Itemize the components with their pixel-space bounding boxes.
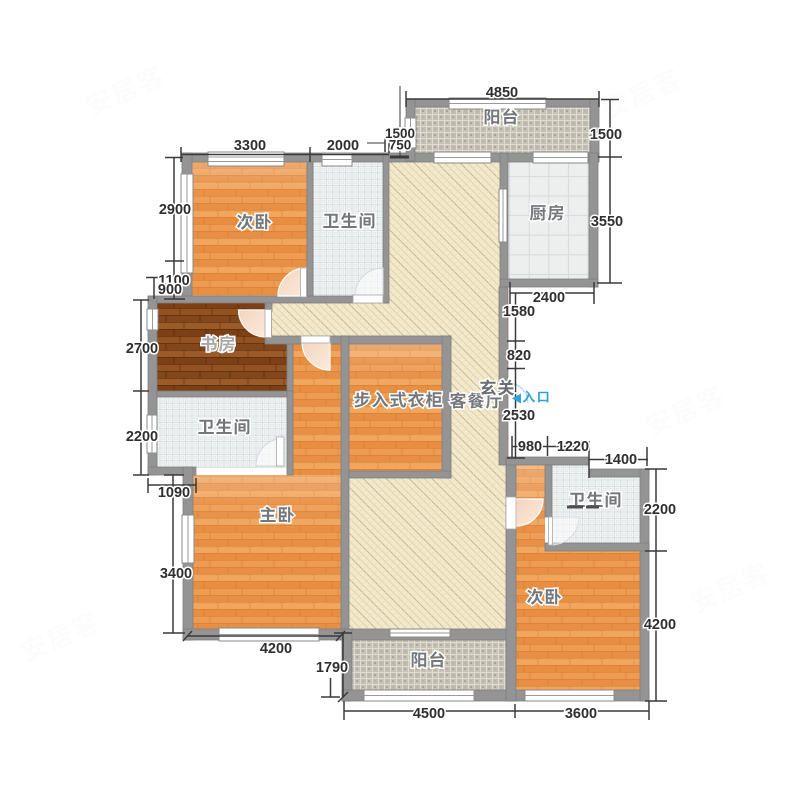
svg-text:4200: 4200	[644, 617, 676, 633]
svg-text:1790: 1790	[316, 660, 348, 676]
svg-text:1220: 1220	[557, 439, 589, 455]
svg-text:1500: 1500	[590, 127, 622, 143]
svg-text:3550: 3550	[591, 214, 623, 230]
svg-text:820: 820	[507, 348, 531, 364]
svg-text:2900: 2900	[159, 202, 191, 218]
svg-text:3400: 3400	[160, 566, 192, 582]
svg-text:2200: 2200	[644, 502, 676, 518]
svg-text:2530: 2530	[503, 408, 535, 424]
svg-text:1090: 1090	[158, 485, 190, 501]
svg-text:1580: 1580	[503, 304, 535, 320]
svg-text:750: 750	[389, 138, 412, 153]
svg-text:2200: 2200	[126, 429, 158, 445]
svg-text:2400: 2400	[533, 290, 565, 306]
svg-text:4850: 4850	[486, 85, 518, 101]
svg-text:980: 980	[518, 439, 542, 455]
svg-text:2700: 2700	[126, 341, 158, 357]
svg-text:4500: 4500	[413, 706, 445, 722]
svg-text:4200: 4200	[260, 641, 292, 657]
svg-text:2000: 2000	[327, 138, 359, 154]
svg-text:3600: 3600	[565, 706, 597, 722]
svg-text:900: 900	[158, 282, 182, 298]
svg-text:3300: 3300	[234, 138, 266, 154]
svg-text:1400: 1400	[605, 452, 637, 468]
